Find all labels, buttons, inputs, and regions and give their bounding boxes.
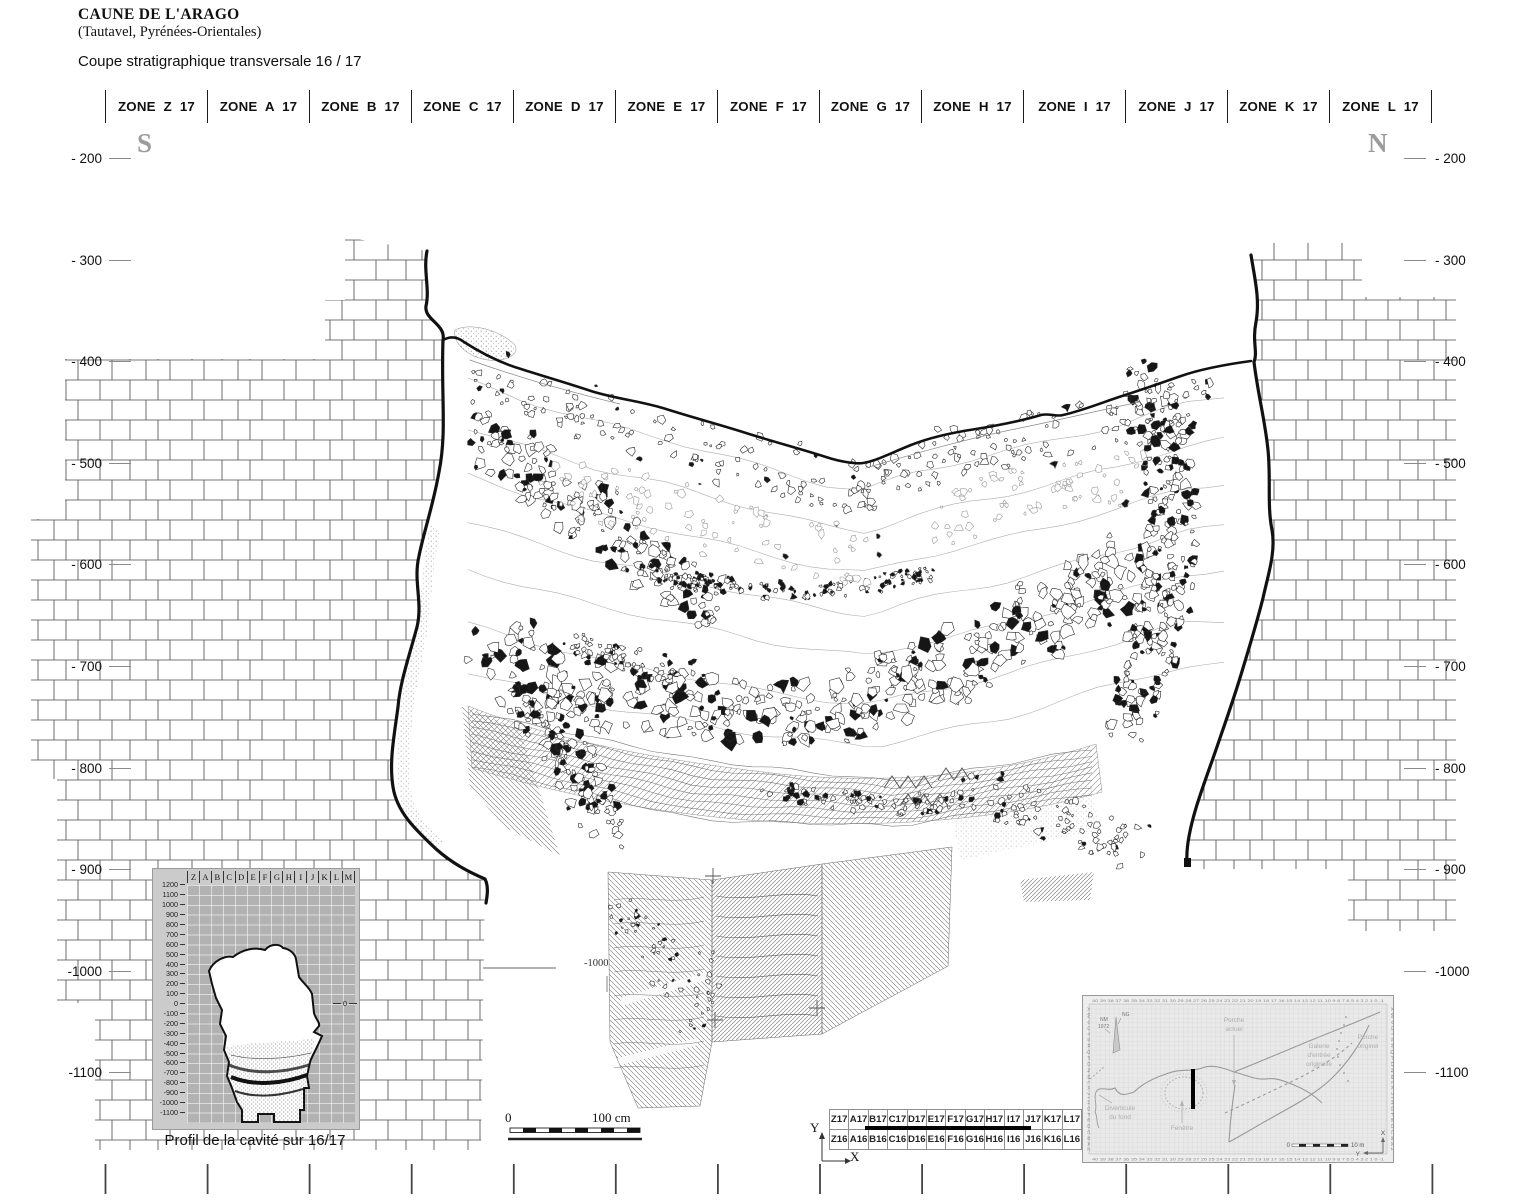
zone-header-row: ZONE Z 17ZONE A 17ZONE B 17ZONE C 17ZONE… <box>105 90 1432 123</box>
table-cell: G16 <box>966 1130 985 1150</box>
depth-label: - 600 <box>1435 557 1466 572</box>
map-bottom-numbers: 40 39 38 37 36 35 34 33 32 31 30 29 28 2… <box>1092 1158 1384 1162</box>
depth-tick <box>109 666 131 667</box>
depth-tick <box>109 260 131 261</box>
map-top-numbers: 40 39 38 37 36 35 34 33 32 31 30 29 28 2… <box>1092 999 1384 1003</box>
sediment-fills <box>397 327 1102 1108</box>
table-row-16: Z16A16B16C16D16E16F16G16H16I16J16K16L16 <box>830 1130 1082 1150</box>
depth-tick <box>1404 666 1426 667</box>
table-cell: F16 <box>946 1130 965 1150</box>
zone-label: ZONE F 17 <box>717 90 819 123</box>
depth-tick-row: -1100 <box>50 1022 131 1124</box>
cave-boundaries <box>392 251 1274 903</box>
depth-tick-row: - 600 <box>1404 514 1470 616</box>
section-16-17-bar <box>1191 1069 1195 1109</box>
table-cell: Z17 <box>830 1110 849 1130</box>
depth-tick <box>1404 1072 1426 1073</box>
generated-strata <box>464 351 1224 1068</box>
map-ng-label: NG <box>1122 1012 1130 1018</box>
depth-tick <box>109 463 131 464</box>
svg-text:Galerie: Galerie <box>1309 1043 1330 1050</box>
depth-label: - 600 <box>50 557 102 572</box>
site-plan-inset: 40 39 38 37 36 35 34 33 32 31 30 29 28 2… <box>1082 995 1394 1163</box>
depth-tick <box>1404 768 1426 769</box>
inner-depth-label: -1000 <box>584 958 609 969</box>
zone-label: ZONE A 17 <box>207 90 309 123</box>
depth-tick-row: - 900 <box>50 819 131 921</box>
table-cell: J16 <box>1024 1130 1043 1150</box>
depth-tick-row: - 800 <box>1404 717 1470 819</box>
depth-tick-row: - 300 <box>1404 210 1470 312</box>
depth-label: -1100 <box>1435 1065 1469 1080</box>
depth-label: - 200 <box>1435 151 1466 166</box>
zone-label: ZONE D 17 <box>513 90 615 123</box>
depth-tick-row: - 700 <box>1404 616 1470 718</box>
depth-label: - 900 <box>1435 862 1466 877</box>
zone-label: ZONE C 17 <box>411 90 513 123</box>
annotations: -1000 <box>483 868 851 1164</box>
depth-scale-left: - 200 - 300 - 400 - 500 - 600 - 700 - 80… <box>50 108 131 1123</box>
depth-tick <box>109 564 131 565</box>
depth-label: - 800 <box>1435 761 1466 776</box>
cavity-profile-inset: ZABCDEFGHIJKLM 1200 1100 1000 900 800 70… <box>152 868 360 1130</box>
depth-tick <box>1404 564 1426 565</box>
table-cell: Z16 <box>830 1130 849 1150</box>
depth-label: - 200 <box>50 151 102 166</box>
svg-text:originel: originel <box>1358 1043 1380 1050</box>
map-right-letters: X W V U T S R Q P O N M L K J I H G F E … <box>1390 1007 1394 1152</box>
table-cell: B16 <box>869 1130 888 1150</box>
table-cell: L17 <box>1063 1110 1082 1130</box>
compass-south: S <box>137 128 152 159</box>
svg-text:actuel: actuel <box>1225 1026 1243 1033</box>
table-cell: K16 <box>1043 1130 1062 1150</box>
depth-tick-row: - 300 <box>50 210 131 312</box>
map-left-letters: X W V U T S R Q P O N M L K J I H G F E … <box>1087 1007 1091 1152</box>
svg-text:Porche: Porche <box>1224 1017 1245 1024</box>
scale-bar <box>508 1128 642 1139</box>
depth-tick-row: -1000 <box>50 920 131 1022</box>
depth-tick-row: - 800 <box>50 717 131 819</box>
cavity-outline <box>153 869 359 1129</box>
page-subtitle: (Tautavel, Pyrénées-Orientales) <box>78 24 261 41</box>
depth-tick-row: -1100 <box>1404 1022 1470 1124</box>
depth-tick <box>109 768 131 769</box>
depth-tick-row: - 500 <box>1404 413 1470 515</box>
depth-label: - 400 <box>50 354 102 369</box>
depth-tick-row: - 400 <box>50 311 131 413</box>
depth-label: - 500 <box>50 456 102 471</box>
table-axis-x-label: X <box>850 1149 859 1165</box>
zone-label: ZONE I 17 <box>1023 90 1125 123</box>
depth-tick-row: - 200 <box>1404 108 1470 210</box>
depth-tick-row: - 700 <box>50 616 131 718</box>
depth-label: - 900 <box>50 862 102 877</box>
svg-text:Diverticule: Diverticule <box>1105 1105 1136 1112</box>
depth-tick-row: -1000 <box>1404 920 1470 1022</box>
svg-text:originelle: originelle <box>1306 1061 1332 1068</box>
depth-label: - 800 <box>50 761 102 776</box>
zone-label: ZONE K 17 <box>1227 90 1329 123</box>
zigzag-marks <box>884 768 970 806</box>
zone-label: ZONE E 17 <box>615 90 717 123</box>
depth-tick-row: - 600 <box>50 514 131 616</box>
scalebar-zero-label: 0 <box>505 1110 512 1126</box>
figure-page: -1000 CAUNE DE L'ARAGO (Tautavel, Pyréné… <box>0 0 1521 1200</box>
depth-label: -1000 <box>1435 964 1470 979</box>
depth-tick <box>109 971 131 972</box>
section-extent-bar <box>865 1126 1031 1131</box>
depth-tick <box>1404 971 1426 972</box>
table-cell: A16 <box>849 1130 868 1150</box>
depth-scale-right: - 200 - 300 - 400 - 500 - 600 - 700 - 80… <box>1404 108 1470 1123</box>
map-scale-bar <box>1292 1144 1348 1147</box>
map-axis-x-label: X <box>1381 1130 1386 1137</box>
depth-tick <box>109 158 131 159</box>
depth-tick <box>1404 158 1426 159</box>
profile-caption: Profil de la cavité sur 16/17 <box>146 1132 364 1149</box>
depth-label: - 400 <box>1435 354 1466 369</box>
depth-tick <box>109 1072 131 1073</box>
depth-tick-row: - 400 <box>1404 311 1470 413</box>
map-scale-10m: 10 m <box>1351 1143 1364 1149</box>
svg-text:Fenêtre: Fenêtre <box>1171 1125 1194 1132</box>
depth-tick <box>1404 361 1426 362</box>
table-cell: E16 <box>927 1130 946 1150</box>
map-year-label: 1972 <box>1098 1024 1109 1030</box>
depth-tick <box>109 869 131 870</box>
map-axis-y-label: Y <box>1356 1151 1361 1158</box>
depth-tick-row: - 900 <box>1404 819 1470 921</box>
depth-label: - 500 <box>1435 456 1466 471</box>
depth-tick <box>1404 869 1426 870</box>
depth-label: - 700 <box>1435 659 1466 674</box>
map-nm-label: NM <box>1100 1017 1108 1023</box>
table-cell: D16 <box>908 1130 927 1150</box>
depth-tick <box>1404 260 1426 261</box>
zone-label: ZONE J 17 <box>1125 90 1227 123</box>
page-title: CAUNE DE L'ARAGO <box>78 6 240 24</box>
zone-label: ZONE H 17 <box>921 90 1023 123</box>
table-cell: K17 <box>1043 1110 1062 1130</box>
svg-text:d'entrée: d'entrée <box>1307 1052 1331 1059</box>
depth-tick-row: - 500 <box>50 413 131 515</box>
depth-tick <box>1404 463 1426 464</box>
table-cell: H16 <box>985 1130 1004 1150</box>
scalebar-100cm-label: 100 cm <box>592 1110 631 1126</box>
table-axis-y-label: Y <box>810 1120 819 1136</box>
table-cell: C16 <box>888 1130 907 1150</box>
figure-caption: Coupe stratigraphique transversale 16 / … <box>78 53 362 70</box>
table-cell: I16 <box>1005 1130 1024 1150</box>
svg-text:du fond: du fond <box>1109 1114 1131 1121</box>
compass-north: N <box>1368 128 1388 159</box>
svg-text:Porche: Porche <box>1358 1034 1379 1041</box>
table-cell: L16 <box>1063 1130 1082 1150</box>
zone-label: ZONE B 17 <box>309 90 411 123</box>
zone-label: ZONE G 17 <box>819 90 921 123</box>
depth-label: - 700 <box>50 659 102 674</box>
depth-label: -1100 <box>50 1065 102 1080</box>
depth-label: - 300 <box>1435 253 1466 268</box>
depth-tick-row: - 200 <box>50 108 131 210</box>
depth-label: - 300 <box>50 253 102 268</box>
depth-label: -1000 <box>50 964 102 979</box>
depth-tick <box>109 361 131 362</box>
